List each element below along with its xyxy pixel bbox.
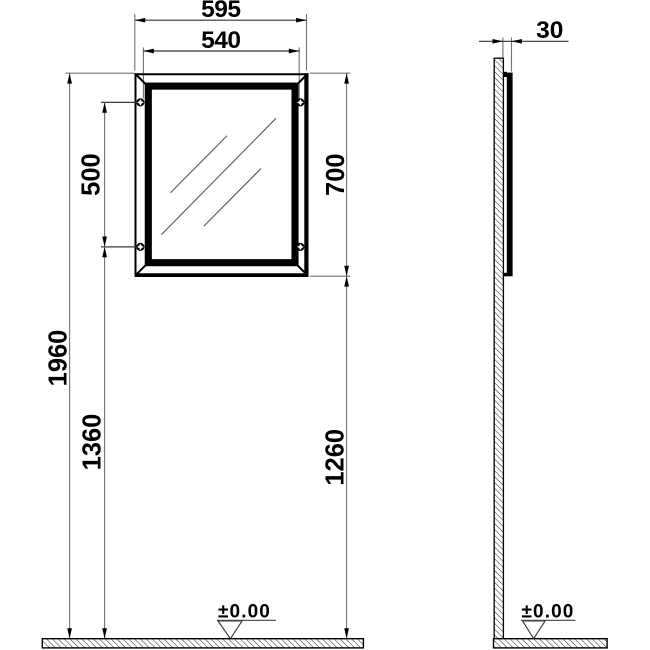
- svg-text:1360: 1360: [78, 414, 106, 471]
- svg-text:±0.00: ±0.00: [522, 602, 575, 623]
- svg-text:540: 540: [201, 27, 240, 54]
- svg-text:30: 30: [536, 17, 563, 44]
- svg-text:1960: 1960: [45, 330, 73, 387]
- svg-text:595: 595: [201, 0, 240, 23]
- svg-text:1260: 1260: [322, 429, 350, 486]
- svg-text:700: 700: [322, 153, 350, 196]
- svg-text:±0.00: ±0.00: [218, 602, 271, 623]
- svg-text:500: 500: [78, 153, 106, 196]
